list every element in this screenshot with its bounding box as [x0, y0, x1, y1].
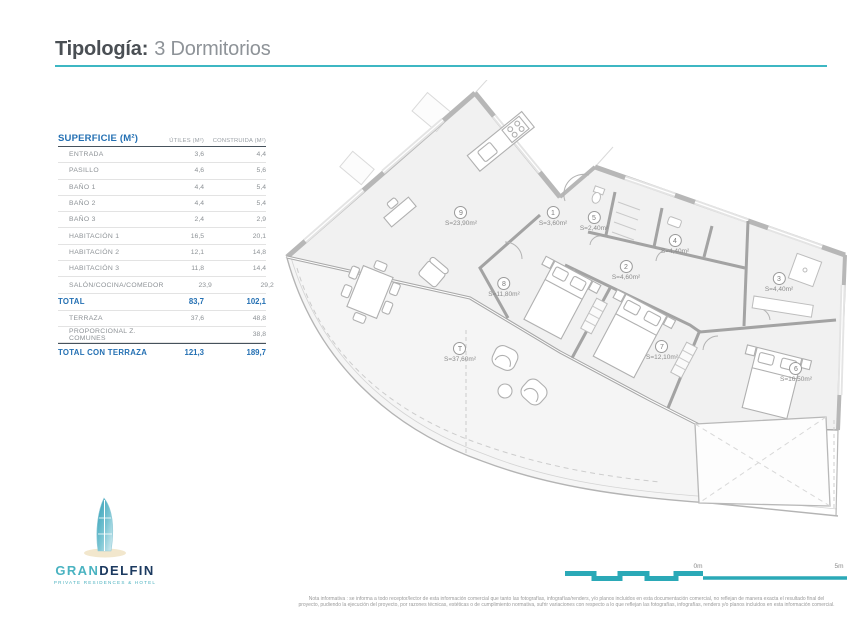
row-construida: 4,4	[204, 151, 266, 158]
floor-plan-drawing	[278, 80, 850, 550]
room-label-1: 1S=3,60m²	[539, 206, 567, 227]
scale-zero-label: 0m	[693, 563, 702, 570]
room-label-3: 3S=4,40m²	[765, 272, 793, 293]
table-row: HABITACIÓN 116,520,1	[58, 228, 266, 244]
logo-name-gran: GRAN	[55, 563, 99, 578]
surface-table: SUPERFICIE (M²) ÚTILES (M²) CONSTRUIDA (…	[58, 128, 266, 361]
room-number: 6	[789, 362, 802, 375]
room-area: S=3,60m²	[539, 220, 567, 227]
scale-bar: 0m 5m	[563, 558, 850, 586]
row-construida: 5,4	[204, 184, 266, 191]
room-label-9: 9S=23,90m²	[445, 206, 477, 227]
row-construida: 38,8	[204, 331, 266, 338]
row-construida: 14,8	[204, 249, 266, 256]
row-label: TOTAL	[58, 297, 156, 306]
row-utiles: 4,6	[156, 167, 204, 174]
table-row: ENTRADA3,64,4	[58, 147, 266, 163]
disclaimer-note: Nota informativa : se informa a todo rec…	[288, 596, 845, 608]
row-utiles: 3,6	[156, 151, 204, 158]
room-label-6: 6S=16,50m²	[780, 362, 812, 383]
room-label-terraza: TS=37,60m²	[444, 342, 476, 363]
table-row: BAÑO 14,45,4	[58, 180, 266, 196]
row-utiles: 83,7	[156, 297, 204, 306]
col-utiles: ÚTILES (M²)	[156, 138, 204, 144]
room-area: S=11,80m²	[488, 291, 520, 298]
room-area: S=4,40m²	[765, 286, 793, 293]
row-construida: 14,4	[204, 265, 266, 272]
row-utiles: 23,9	[164, 282, 212, 289]
table-row: BAÑO 32,42,9	[58, 212, 266, 228]
table-row: HABITACIÓN 212,114,8	[58, 245, 266, 261]
row-label: PROPORCIONAL Z. COMUNES	[58, 328, 156, 342]
room-number: 8	[498, 277, 511, 290]
room-number: 9	[454, 206, 467, 219]
room-area: S=23,90m²	[445, 220, 477, 227]
room-label-5: 5S=2,40m²	[580, 211, 608, 232]
row-label: BAÑO 2	[58, 200, 156, 207]
row-utiles: 121,3	[156, 348, 204, 357]
table-row: TERRAZA37,648,8	[58, 311, 266, 327]
room-number: 1	[547, 206, 560, 219]
logo-name: GRANDELFIN	[46, 563, 164, 578]
excluded-area-crossed	[695, 417, 838, 516]
row-label: BAÑO 1	[58, 184, 156, 191]
room-number: 5	[588, 211, 601, 224]
row-label: TOTAL CON TERRAZA	[58, 348, 156, 357]
room-label-7: 7S=12,10m²	[646, 340, 678, 361]
room-number: 4	[669, 234, 682, 247]
room-area: S=4,60m²	[612, 274, 640, 281]
row-construida: 5,6	[204, 167, 266, 174]
table-row: PASILLO4,65,6	[58, 163, 266, 179]
row-construida: 189,7	[204, 348, 266, 357]
row-construida: 102,1	[204, 297, 266, 306]
room-label-2: 2S=4,60m²	[612, 260, 640, 281]
room-number: T	[453, 342, 466, 355]
row-construida: 2,9	[204, 216, 266, 223]
row-label: SALÓN/COCINA/COMEDOR	[58, 282, 164, 289]
row-label: HABITACIÓN 1	[58, 233, 156, 240]
page: { "header": { "title_label": "Tipología:…	[0, 0, 850, 620]
row-utiles: 12,1	[156, 249, 204, 256]
table-row-total: TOTAL83,7102,1	[58, 294, 266, 311]
room-label-8: 8S=11,80m²	[488, 277, 520, 298]
table-title: SUPERFICIE (M²)	[58, 133, 156, 144]
title-value: 3 Dormitorios	[154, 38, 270, 60]
room-number: 3	[773, 272, 786, 285]
table-row: SALÓN/COCINA/COMEDOR23,929,2	[58, 277, 266, 293]
table-row: PROPORCIONAL Z. COMUNES38,8	[58, 327, 266, 343]
disclaimer-line2: proyecto, pudiendo la ejecución del proy…	[288, 602, 845, 608]
room-number: 2	[620, 260, 633, 273]
surface-table-header: SUPERFICIE (M²) ÚTILES (M²) CONSTRUIDA (…	[58, 128, 266, 147]
gran-delfin-logo: GRANDELFIN PRIVATE RESIDENCES & HOTEL	[46, 496, 164, 585]
table-row: HABITACIÓN 311,814,4	[58, 261, 266, 277]
row-utiles: 4,4	[156, 184, 204, 191]
room-area: S=37,60m²	[444, 356, 476, 363]
logo-tagline: PRIVATE RESIDENCES & HOTEL	[46, 580, 164, 585]
title-underline	[55, 65, 827, 67]
room-number: 7	[655, 340, 668, 353]
table-row-grand-total: TOTAL CON TERRAZA121,3189,7	[58, 343, 266, 361]
row-utiles: 2,4	[156, 216, 204, 223]
room-area: S=16,50m²	[780, 376, 812, 383]
terrace-side-table	[498, 384, 512, 398]
row-construida: 20,1	[204, 233, 266, 240]
row-label: BAÑO 3	[58, 216, 156, 223]
row-construida: 29,2	[212, 282, 274, 289]
scale-end-label: 5m	[834, 563, 843, 570]
row-label: HABITACIÓN 2	[58, 249, 156, 256]
room-area: S=4,40m²	[661, 248, 689, 255]
row-label: HABITACIÓN 3	[58, 265, 156, 272]
room-label-4: 4S=4,40m²	[661, 234, 689, 255]
page-title: Tipología:3 Dormitorios	[55, 38, 271, 61]
col-construida: CONSTRUIDA (M²)	[204, 138, 266, 144]
sail-building-icon	[82, 496, 128, 560]
scale-bar-steps	[565, 574, 703, 579]
row-construida: 5,4	[204, 200, 266, 207]
logo-name-delfin: DELFIN	[99, 563, 154, 578]
title-label: Tipología:	[55, 38, 148, 60]
row-label: TERRAZA	[58, 315, 156, 322]
row-label: ENTRADA	[58, 151, 156, 158]
room-area: S=2,40m²	[580, 225, 608, 232]
room-area: S=12,10m²	[646, 354, 678, 361]
row-label: PASILLO	[58, 167, 156, 174]
row-utiles: 4,4	[156, 200, 204, 207]
row-utiles: 16,5	[156, 233, 204, 240]
row-utiles: 37,6	[156, 315, 204, 322]
row-construida: 48,8	[204, 315, 266, 322]
row-utiles: 11,8	[156, 265, 204, 272]
table-row: BAÑO 24,45,4	[58, 196, 266, 212]
